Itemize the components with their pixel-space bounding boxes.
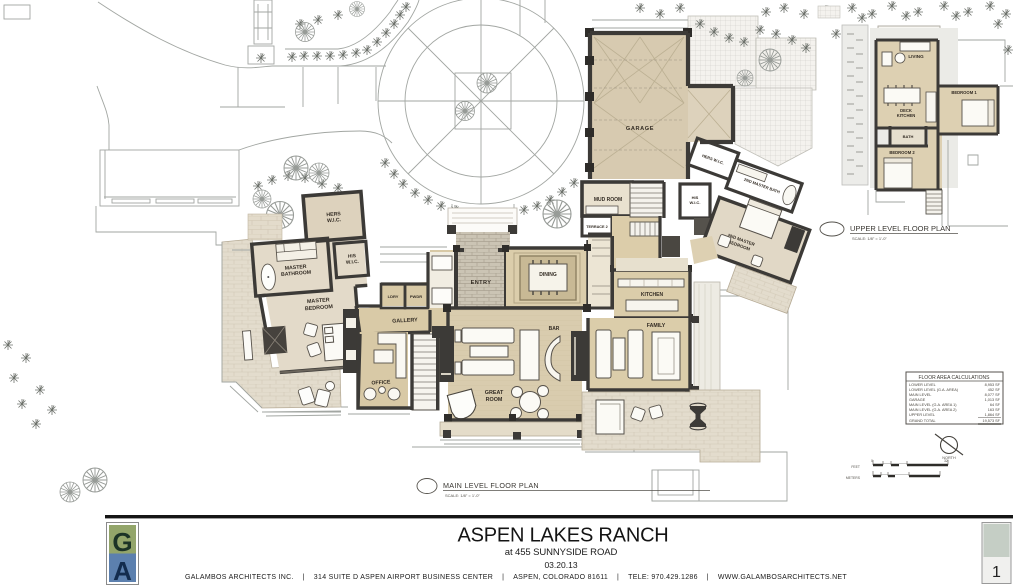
svg-text:ASPEN LAKES RANCH: ASPEN LAKES RANCH (457, 525, 668, 547)
svg-text:LDRY: LDRY (388, 294, 399, 299)
svg-text:MAIN LEVEL: MAIN LEVEL (909, 393, 931, 397)
svg-text:KITCHEN: KITCHEN (897, 113, 916, 118)
svg-text:SCALE: 1/8" = 1'-0": SCALE: 1/8" = 1'-0" (852, 236, 887, 241)
svg-text:GARAGE: GARAGE (909, 398, 926, 402)
svg-text:BAR: BAR (549, 326, 560, 332)
svg-text:BEDROOM 1: BEDROOM 1 (951, 90, 977, 95)
svg-text:163 SF: 163 SF (988, 408, 1001, 412)
svg-text:MAIN LEVEL (G.A. AREA 2): MAIN LEVEL (G.A. AREA 2) (909, 408, 957, 412)
svg-text:LOWER LEVEL (G.A. AREA): LOWER LEVEL (G.A. AREA) (909, 388, 959, 392)
svg-text:W.I.C.: W.I.C. (346, 259, 359, 266)
svg-text:HIS: HIS (348, 253, 357, 260)
svg-text:SCALE: 1/8" = 1'-0": SCALE: 1/8" = 1'-0" (445, 493, 480, 498)
svg-text:DINING: DINING (539, 272, 557, 278)
svg-text:FAMILY: FAMILY (647, 323, 666, 329)
svg-text:W.I.C.: W.I.C. (690, 200, 701, 205)
svg-text:UPPER LEVEL: UPPER LEVEL (909, 413, 935, 417)
svg-text:8,953 SF: 8,953 SF (985, 383, 1001, 387)
svg-text:BATH: BATH (903, 134, 914, 139)
svg-text:ROOM: ROOM (486, 397, 503, 403)
svg-text:LIVING: LIVING (908, 54, 924, 59)
svg-text:TERRACE 2: TERRACE 2 (586, 225, 608, 229)
svg-text:FEET: FEET (851, 465, 860, 469)
svg-text:BEDROOM 2: BEDROOM 2 (889, 150, 915, 155)
svg-text:1: 1 (992, 564, 1001, 581)
svg-text:G: G (112, 527, 132, 557)
svg-text:LOWER LEVEL: LOWER LEVEL (909, 383, 936, 387)
svg-text:MUD ROOM: MUD ROOM (594, 197, 622, 203)
svg-text:1,013 SF: 1,013 SF (985, 398, 1001, 402)
svg-text:at 455 SUNNYSIDE ROAD: at 455 SUNNYSIDE ROAD (505, 547, 618, 558)
svg-text:0: 0 (871, 459, 873, 463)
svg-text:ENTRY: ENTRY (471, 280, 492, 286)
svg-text:GREAT: GREAT (485, 390, 504, 396)
svg-text:W.I.C.: W.I.C. (327, 217, 342, 224)
svg-text:19,573 SF: 19,573 SF (982, 419, 1000, 423)
svg-text:GALAMBOS ARCHITECTS INC. |: GALAMBOS ARCHITECTS INC. | 314 SUITE D A… (185, 574, 847, 581)
svg-text:MAIN LEVEL (G.A. AREA 1): MAIN LEVEL (G.A. AREA 1) (909, 403, 957, 407)
svg-text:OFFICE: OFFICE (371, 379, 391, 386)
svg-text:MAIN LEVEL FLOOR PLAN: MAIN LEVEL FLOOR PLAN (443, 481, 539, 490)
svg-text:8,077 SF: 8,077 SF (985, 393, 1001, 397)
svg-text:FLOOR AREA CALCULATIONS: FLOOR AREA CALCULATIONS (918, 375, 990, 381)
svg-text:1,864 SF: 1,864 SF (985, 413, 1001, 417)
svg-text:GARAGE: GARAGE (626, 126, 654, 132)
svg-text:32': 32' (944, 459, 949, 463)
svg-text:KITCHEN: KITCHEN (641, 292, 664, 298)
svg-text:UPPER LEVEL FLOOR PLAN: UPPER LEVEL FLOOR PLAN (850, 224, 951, 233)
svg-text:GRAND TOTAL: GRAND TOTAL (909, 419, 936, 423)
svg-text:A: A (113, 556, 132, 585)
svg-text:452 SF: 452 SF (988, 388, 1001, 392)
svg-text:PWDR: PWDR (410, 294, 422, 299)
svg-text:03.20.13: 03.20.13 (544, 560, 577, 570)
svg-text:METERS: METERS (846, 476, 861, 480)
svg-text:64 SF: 64 SF (990, 403, 1001, 407)
